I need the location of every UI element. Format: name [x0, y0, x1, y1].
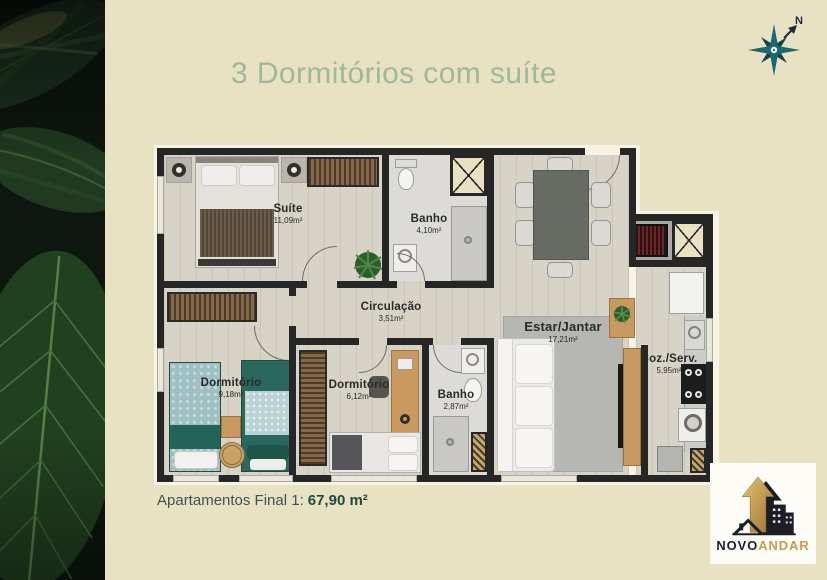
novoandar-logo-icon: NOVOANDAR [710, 463, 816, 564]
sofa [497, 338, 555, 472]
suite-closet [307, 157, 379, 187]
headboard [196, 157, 278, 163]
suite-bed [195, 156, 279, 268]
wall [157, 148, 585, 155]
apartment-info: Apartamentos Final 1:67,90 m² [157, 492, 368, 509]
room-label-dormitorio-1: Dormitório 9,18m² [201, 377, 262, 399]
wall [387, 338, 433, 345]
ventilation-shaft [672, 221, 706, 260]
pillow [247, 445, 289, 459]
sofa-cushion [515, 344, 553, 384]
sink-bowl [688, 326, 701, 339]
pillow [388, 436, 418, 453]
burner [685, 391, 692, 398]
wall [289, 326, 296, 475]
dining-chair [591, 182, 611, 208]
service-shaft [690, 448, 706, 473]
bedside-table [221, 416, 241, 438]
room-label-suite: Suíte 11,09m² [273, 203, 302, 225]
leaf-photo [0, 0, 105, 580]
washer-drum [684, 414, 702, 432]
wall [296, 338, 359, 345]
wall [487, 338, 494, 475]
plant-icon [351, 248, 385, 282]
floor-plan: Suíte 11,09m² Banho 4,10m² Circulação 3,… [157, 148, 716, 482]
svg-text:NOVOANDAR: NOVOANDAR [716, 538, 809, 553]
logo-text-primary: NOVO [716, 538, 758, 553]
room-label-banho-suite: Banho 4,10m² [411, 213, 448, 235]
wardrobe [167, 292, 257, 322]
window [501, 475, 577, 482]
sofa-cushion [515, 386, 553, 426]
pillow [388, 454, 418, 471]
pillow [239, 165, 275, 186]
wall [487, 155, 494, 288]
wall [425, 281, 487, 288]
tv-panel [623, 348, 641, 466]
bed-bench [198, 259, 276, 266]
room-label-circulacao: Circulação 3,51m² [361, 301, 422, 323]
wall [629, 214, 636, 267]
round-rug [219, 442, 245, 468]
burner [695, 391, 702, 398]
compass-rose-icon: N [744, 12, 808, 76]
laundry-tank [657, 446, 683, 472]
apartment-info-label: Apartamentos Final 1: [157, 492, 304, 509]
toilet [398, 168, 414, 190]
blanket [200, 209, 274, 257]
desk-plant [400, 414, 410, 424]
window [157, 348, 164, 392]
pillow [174, 451, 218, 469]
tv [618, 364, 623, 448]
pillow [201, 165, 237, 186]
wall [629, 148, 636, 221]
wall [422, 345, 429, 475]
pillow [250, 459, 286, 470]
basin-bowl [466, 353, 479, 366]
wall [164, 281, 307, 288]
window [706, 318, 713, 362]
dining-table [533, 170, 589, 260]
dining-chair [591, 220, 611, 246]
table-lamp [172, 163, 186, 177]
dining-chair [515, 182, 535, 208]
wall [382, 155, 389, 288]
service-shaft [471, 432, 487, 472]
compass-north-label: N [795, 15, 803, 27]
room-label-estar-jantar: Estar/Jantar 17,21m² [524, 320, 602, 344]
plant-icon [612, 304, 632, 324]
sofa-cushion [515, 428, 553, 468]
window [331, 475, 417, 482]
single-bed [329, 432, 421, 473]
blanket [332, 435, 362, 470]
window [239, 475, 293, 482]
ventilation-shaft [450, 155, 487, 196]
window [173, 475, 219, 482]
table-lamp [287, 163, 301, 177]
sofa-back [498, 339, 513, 471]
wall [629, 260, 706, 267]
shower-drain [464, 236, 472, 244]
flyer-page: 3 Dormitórios com suíte N [0, 0, 827, 580]
toilet-tank [395, 159, 417, 168]
wall [337, 281, 397, 288]
ac-condenser [634, 224, 668, 257]
wall [289, 288, 296, 296]
dining-chair [547, 262, 573, 278]
room-label-banho-social: Banho 2,87m² [438, 389, 475, 411]
dining-chair [515, 220, 535, 246]
logo-text-secondary: ANDAR [758, 538, 809, 553]
wall [461, 338, 487, 345]
shower-drain [446, 438, 454, 446]
window [157, 176, 164, 234]
apartment-area-value: 67,90 m² [308, 492, 368, 509]
room-label-dormitorio-2: Dormitório 6,12m² [329, 379, 390, 401]
novoandar-logo: NOVOANDAR [710, 463, 816, 564]
wardrobe [299, 350, 327, 466]
refrigerator [669, 272, 704, 314]
page-title: 3 Dormitórios com suíte [231, 57, 557, 91]
laptop [397, 358, 413, 370]
blanket [170, 425, 220, 449]
room-label-cozinha-servico: Coz./Serv. 5,95m² [641, 353, 698, 375]
wall [629, 214, 713, 221]
